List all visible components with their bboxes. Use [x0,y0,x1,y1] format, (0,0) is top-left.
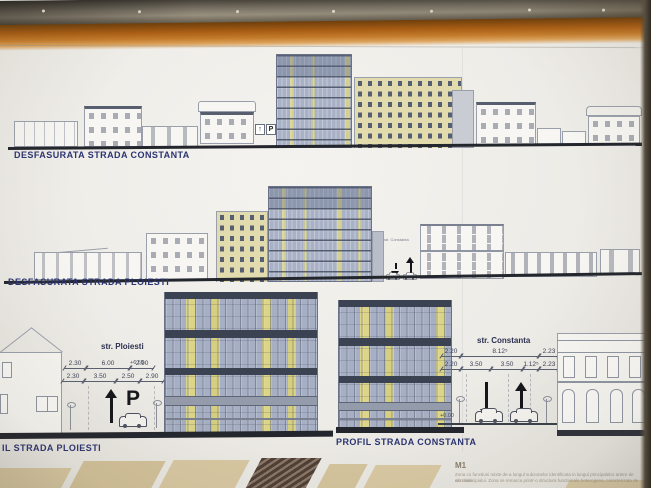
map-parcel [352,465,441,488]
background-building-outline [142,126,198,147]
window [585,356,597,378]
facade-balcony-band [339,402,451,411]
background-building-outline [200,112,254,144]
arched-window [562,389,575,423]
background-building-outline [588,116,640,144]
level-mark-zero: +0.00 [440,413,454,419]
facade-floor-band [339,300,451,307]
background-building-outline [476,102,536,146]
window [0,394,8,414]
street-lamp-icon [542,396,552,424]
facade-floor-band [339,418,451,420]
arched-window [586,389,599,423]
proposed-tower-elevation-constanta [276,54,352,148]
dimension-row-lower: 2.303.502.502.90 [62,373,164,382]
cornice-line [557,381,645,383]
dimension-guide [466,374,467,422]
cross-street-sign-label: str. Constanta [384,237,409,242]
background-building-roof [586,106,642,116]
profile-ploiesti-title: IL STRADA PLOIESTI [2,443,101,453]
legend-zone-code: M1 [455,461,466,470]
left-house-roof [31,327,63,352]
street-surface-line [438,423,560,425]
background-building-outline [84,106,142,147]
street-label-ploiesti: str. Ploiesti [101,342,144,351]
parking-letter: P [126,388,140,409]
tower-top-floors [269,187,371,208]
cornice-line [557,340,645,341]
background-building-outline [372,231,384,282]
background-building-outline [14,121,78,147]
background-building-roof [198,101,256,112]
background-building-outline [600,249,640,275]
dimension-row-upper: 2.306.002.90 [64,360,154,369]
elevation-constanta-title: DESFASURATA STRADA CONSTANTA [14,150,190,160]
background-building-outline [34,252,142,280]
facade-floor-band [165,368,317,375]
cornice-line [420,250,504,252]
car-icon [475,411,503,422]
cornice-line [557,352,645,353]
right-house-base [557,430,645,436]
car-icon [119,416,147,427]
street-lamp-icon [66,402,76,430]
up-arrow-icon: ↑ [255,124,265,135]
window [2,362,12,378]
dimension-guide [508,374,509,422]
elevation-ploiesti-title: DESFASURATA STRADA PLOIESTI [8,277,169,287]
facade-floor-band [165,418,317,420]
window [36,396,58,412]
board-right-edge [640,0,651,488]
background-building-outline [452,90,474,148]
dimension-row-upper: 2.208.12⁵2.23 [441,348,559,357]
facade-balcony-band [165,396,317,406]
facade-profile-constanta [338,300,452,428]
facade-profile-ploiesti [164,292,318,434]
facade-floor-band [339,338,451,346]
car-icon [510,411,538,422]
arched-window [610,389,623,423]
parking-icon: P [266,124,276,135]
window [563,356,575,378]
street-label-constanta: str. Constanta [477,336,530,345]
profile-constanta-title: PROFIL STRADA CONSTANTA [336,437,477,447]
facade-floor-band [339,376,451,383]
traffic-up-arrow [105,389,118,423]
parking-entry-marker: ↑ P [255,124,276,135]
ground-line-profile-ploiesti [0,431,333,439]
map-parcel [0,468,72,488]
left-house-roof [0,327,32,352]
background-building-outline [146,233,208,280]
map-parcel [60,461,165,488]
map-parcel-highlighted [238,458,321,488]
adjacent-residential-building [216,211,268,282]
adjacent-residential-building [354,77,462,148]
street-lamp-icon [152,400,162,428]
tower-top-floors [277,55,351,77]
ground-line-profile-constanta [336,427,464,433]
dimension-guide [88,386,89,430]
dimension-row-lower: 2.203.503.501.12⁵2.23 [441,361,559,370]
photo-of-architectural-board: ↑ P DESFASURATA STRADA CONSTANTA str. Co… [0,0,651,488]
street-lamp-icon [455,396,465,424]
facade-floor-band [165,330,317,338]
rail-rivets [42,9,45,12]
window [607,356,619,378]
map-parcel [150,460,249,488]
legend-zone-description-line2: ale municipiului. Zona se remarca printr… [455,478,645,484]
facade-floor-band [165,292,317,299]
proposed-tower-elevation-ploiesti [268,186,372,282]
